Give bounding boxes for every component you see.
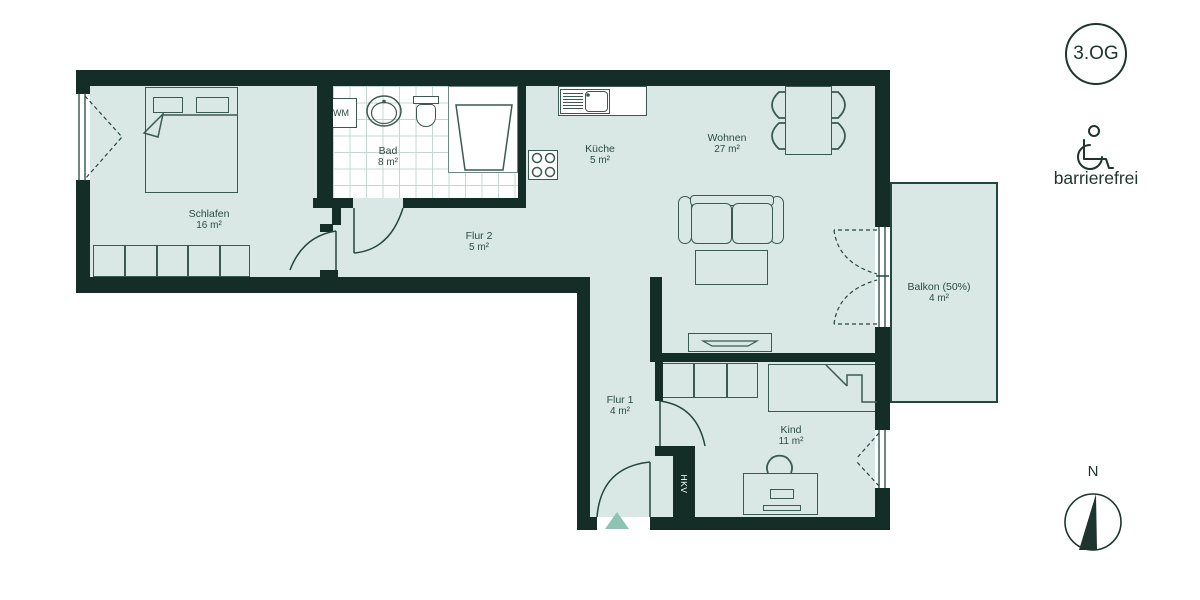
label-flur1: Flur 1 4 m² — [560, 394, 680, 418]
compass-needle — [1079, 494, 1097, 550]
floorplan-canvas: Schlafen 16 m² Bad 8 m² Küche 5 m² Wohne… — [0, 0, 1200, 600]
label-kind: Kind 11 m² — [731, 424, 851, 448]
door-schlafen — [290, 231, 336, 270]
washing-machine-label: WM — [325, 98, 357, 128]
label-wohnen: Wohnen 27 m² — [667, 132, 787, 156]
window-kind — [856, 430, 885, 488]
door-entrance — [597, 462, 650, 517]
accessibility-label: barrierefrei — [1026, 168, 1166, 189]
wheelchair-icon — [1070, 118, 1118, 174]
washbasin-inner — [372, 103, 397, 124]
balcony-door — [834, 227, 889, 327]
floor-badge-text: 3.OG — [1073, 43, 1118, 65]
label-balkon: Balkon (50%) 4 m² — [879, 281, 999, 305]
kind-bed-detail — [826, 365, 877, 402]
label-bad: Bad 8 m² — [328, 145, 448, 169]
basin-faucet — [382, 100, 386, 104]
sink-faucet — [586, 93, 590, 97]
window-schlafen — [79, 93, 122, 181]
plan-linework — [0, 0, 1200, 600]
bed-blanket-fold — [144, 114, 238, 137]
sideboard-tray — [703, 341, 757, 346]
floor-badge: 3.OG — [1065, 23, 1127, 85]
hkv-label: HKV — [677, 464, 691, 504]
shower-tray — [456, 105, 512, 170]
door-bad — [354, 208, 403, 253]
label-flur2: Flur 2 5 m² — [419, 230, 539, 254]
entrance-arrow — [605, 512, 629, 529]
label-schlafen: Schlafen 16 m² — [149, 208, 269, 232]
desk-chair — [767, 456, 792, 473]
label-kueche: Küche 5 m² — [540, 143, 660, 167]
compass-icon — [1062, 487, 1126, 557]
compass-north-label: N — [1083, 463, 1103, 480]
